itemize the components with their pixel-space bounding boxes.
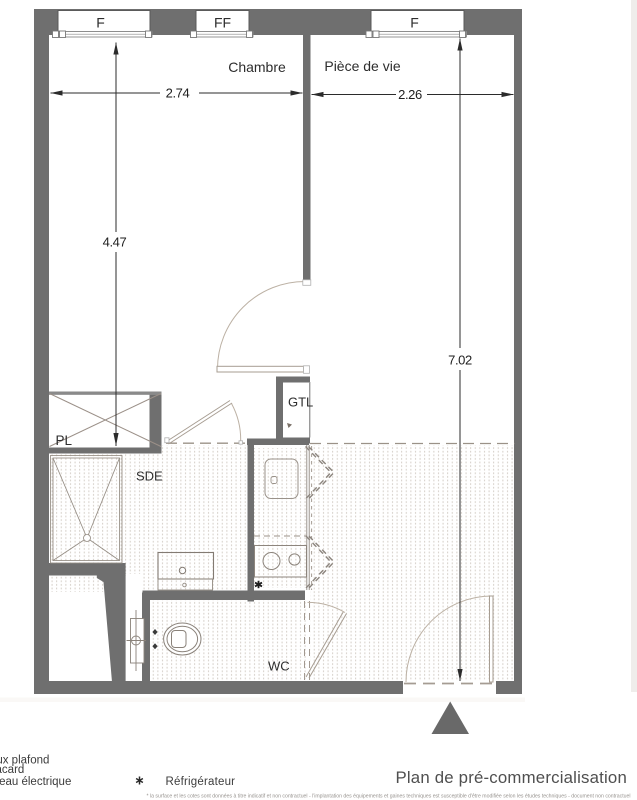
svg-text:F: F (410, 15, 419, 31)
svg-text:2.26: 2.26 (398, 87, 422, 102)
svg-text:FF: FF (214, 15, 231, 31)
svg-text:Tableau électrique: Tableau électrique (0, 776, 71, 788)
svg-text:7.02: 7.02 (448, 353, 472, 368)
svg-text:PL: PL (56, 433, 73, 448)
svg-text:WC: WC (268, 659, 290, 674)
svg-text:Placard: Placard (0, 764, 24, 776)
svg-text:Chambre: Chambre (228, 59, 286, 75)
svg-text:Pièce de vie: Pièce de vie (324, 58, 400, 74)
svg-text:Réfrigérateur: Réfrigérateur (166, 776, 236, 788)
svg-text:GTL: GTL (288, 395, 313, 410)
svg-text:SDE: SDE (136, 469, 163, 484)
svg-text:F: F (96, 15, 105, 31)
svg-text:2.74: 2.74 (166, 86, 190, 101)
svg-text:4.47: 4.47 (103, 235, 127, 250)
svg-text:* la surface et les cotes sont: * la surface et les cotes sont données à… (147, 794, 631, 800)
svg-text:Plan de pré-commercialisation: Plan de pré-commercialisation (395, 768, 627, 787)
